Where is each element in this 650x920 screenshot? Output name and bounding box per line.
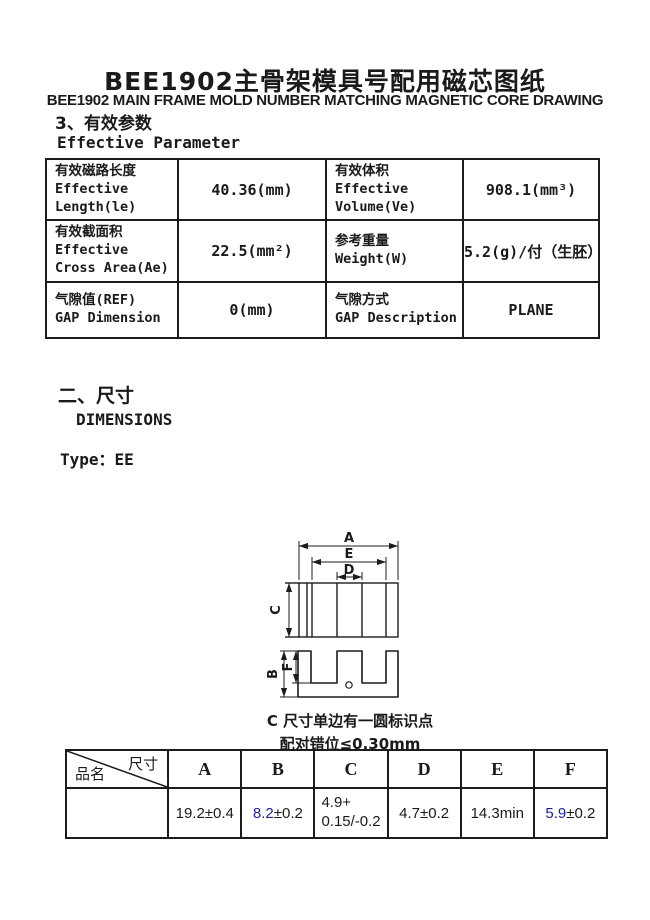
diagonal-header-cell: 尺寸 品名: [66, 750, 168, 788]
dim-label-F: F: [281, 663, 296, 672]
identification-dot: [346, 682, 352, 688]
section-dimensions-heading-en: DIMENSIONS: [76, 410, 172, 429]
section-effective-params-heading-en: Effective Parameter: [57, 133, 240, 152]
front-view-outline: [298, 651, 398, 697]
param-label-cross-area: 有效截面积 Effective Cross Area(Ae): [46, 220, 178, 281]
column-header-B: B: [241, 750, 314, 788]
dim-label-C: C: [269, 605, 284, 615]
table-row: 有效磁路长度 Effective Length(le) 40.36(mm) 有效…: [46, 159, 599, 220]
dim-label-D: D: [344, 563, 355, 578]
cell-product-name: [66, 788, 168, 838]
corner-label-dimension: 尺寸: [128, 753, 158, 774]
param-value-gap-description: PLANE: [463, 282, 599, 338]
section-dimensions-heading-cn: 二、尺寸: [58, 381, 134, 408]
table-row: 19.2±0.4 8.2±0.2 4.9+0.15/-0.2 4.7±0.2 1…: [66, 788, 607, 838]
column-header-E: E: [461, 750, 534, 788]
param-label-gap-dimension: 气隙值(REF) GAP Dimension: [46, 282, 178, 338]
param-label-gap-description: 气隙方式 GAP Description: [326, 282, 463, 338]
param-value-gap-dimension: 0(mm): [178, 282, 326, 338]
cell-dim-A: 19.2±0.4: [168, 788, 241, 838]
ee-core-dimension-diagram: A E D C B F: [230, 525, 470, 705]
dimension-value-table: 尺寸 品名 A B C D E F 19.2±0.4 8.2±0.2 4.9+0…: [65, 749, 608, 839]
param-label-effective-volume: 有效体积 Effective Volume(Ve): [326, 159, 463, 220]
param-value-effective-length: 40.36(mm): [178, 159, 326, 220]
dim-F-tolerance: ±0.2: [566, 805, 595, 822]
top-view-outline: [285, 583, 398, 637]
dim-label-E: E: [345, 547, 354, 562]
cell-dim-F: 5.9±0.2: [534, 788, 607, 838]
dim-label-A: A: [344, 531, 354, 546]
column-header-F: F: [534, 750, 607, 788]
cell-dim-C: 4.9+0.15/-0.2: [314, 788, 387, 838]
dim-label-B: B: [266, 669, 281, 679]
dim-F-value: 5.9: [545, 805, 566, 822]
document-page: BEE1902主骨架模具号配用磁芯图纸 BEE1902 MAIN FRAME M…: [0, 0, 650, 920]
dim-B-value: 8.2: [253, 805, 274, 822]
table-header-row: 尺寸 品名 A B C D E F: [66, 750, 607, 788]
param-label-effective-length: 有效磁路长度 Effective Length(le): [46, 159, 178, 220]
cell-dim-D: 4.7±0.2: [388, 788, 461, 838]
table-row: 气隙值(REF) GAP Dimension 0(mm) 气隙方式 GAP De…: [46, 282, 599, 338]
column-header-C: C: [314, 750, 387, 788]
cell-dim-E: 14.3min: [461, 788, 534, 838]
param-value-effective-volume: 908.1(mm³): [463, 159, 599, 220]
param-value-cross-area: 22.5(mm²): [178, 220, 326, 281]
dim-C-line2: 0.15/-0.2: [321, 813, 380, 830]
dim-B-tolerance: ±0.2: [274, 805, 303, 822]
param-label-weight: 参考重量 Weight(W): [326, 220, 463, 281]
core-type-label: Type：EE: [60, 446, 134, 470]
effective-parameter-table: 有效磁路长度 Effective Length(le) 40.36(mm) 有效…: [45, 158, 600, 339]
section-effective-params-heading-cn: 3、有效参数: [55, 109, 152, 134]
corner-label-product-name: 品名: [75, 763, 105, 784]
column-header-D: D: [388, 750, 461, 788]
param-value-weight: 5.2(g)/付（生胚）: [463, 220, 599, 281]
dim-C-line1: 4.9+: [321, 794, 351, 811]
cell-dim-B: 8.2±0.2: [241, 788, 314, 838]
table-row: 有效截面积 Effective Cross Area(Ae) 22.5(mm²)…: [46, 220, 599, 281]
column-header-A: A: [168, 750, 241, 788]
diagram-note-identification-dot: C 尺寸单边有一圆标识点: [230, 710, 470, 731]
page-title-en: BEE1902 MAIN FRAME MOLD NUMBER MATCHING …: [0, 92, 650, 109]
